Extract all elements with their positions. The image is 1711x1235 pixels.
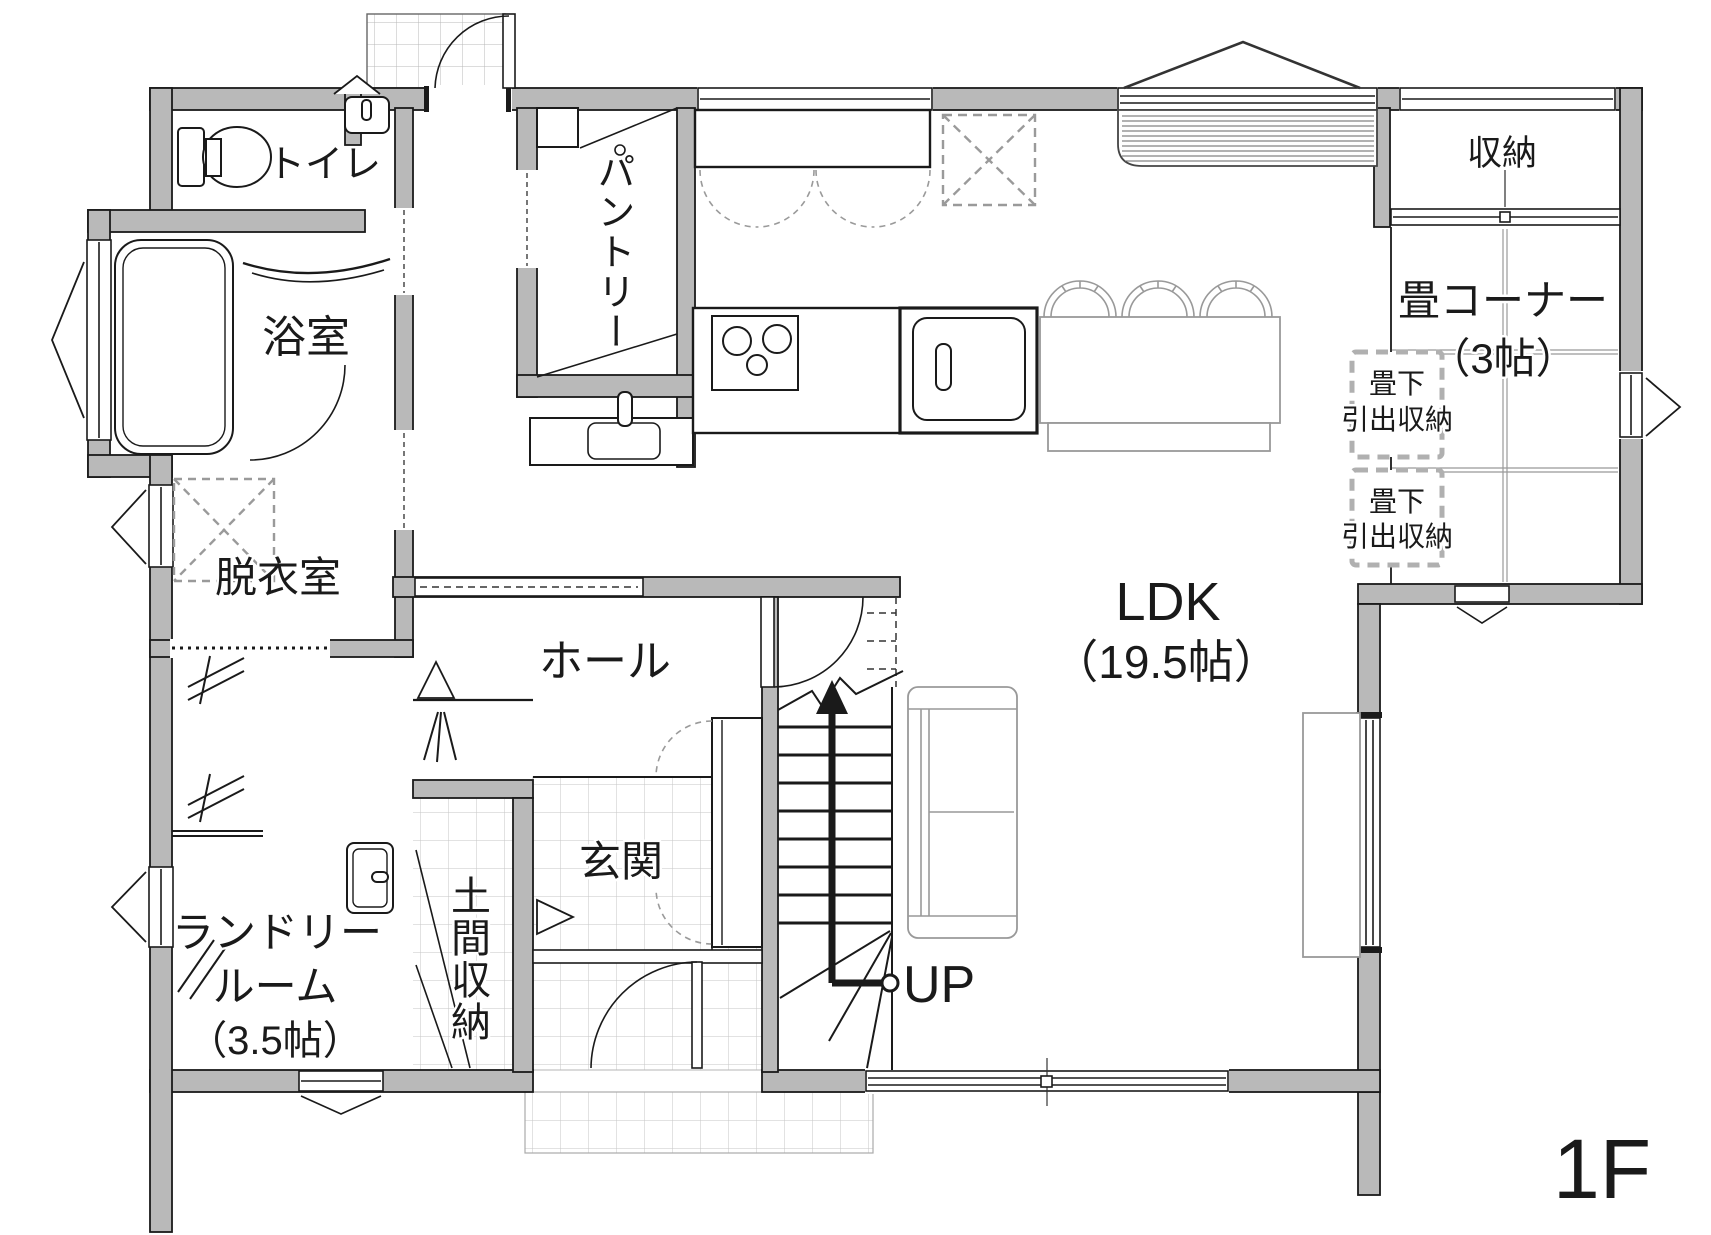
- stairs: [778, 671, 903, 1070]
- burner-icon: [747, 355, 767, 375]
- floor-label: 1F: [1553, 1122, 1651, 1216]
- window-center-lock: [1041, 1076, 1052, 1087]
- window-triangle-icon: [52, 262, 84, 418]
- ldk-door-leaf: [761, 597, 774, 687]
- hanger-pole-icon: [424, 712, 456, 762]
- dining-table: [1040, 317, 1280, 423]
- under-tatami-2-line2: 引出収納: [1341, 521, 1453, 552]
- laundry-counter-line: [172, 831, 263, 836]
- bath-counter-curve: [243, 259, 390, 273]
- entrance-label: 玄関: [579, 838, 663, 885]
- up-label: UP: [903, 956, 975, 1014]
- bath-label: 浴室: [262, 313, 350, 362]
- tv-board: [1303, 713, 1360, 957]
- changing-label: 脱衣室: [215, 554, 341, 601]
- wall-left-main: [150, 455, 172, 1232]
- up-arrow-head-icon: [816, 680, 848, 714]
- under-tatami-1-line1: 畳下: [1369, 368, 1425, 399]
- tatami-size-label: （3帖）: [1428, 335, 1577, 382]
- dining-chairs: [1044, 281, 1272, 317]
- bay-window-seat: [1118, 110, 1377, 166]
- burner-icon: [723, 327, 751, 355]
- ldk-size-label: （19.5帖）: [1052, 636, 1280, 688]
- storage-label: 収納: [1467, 134, 1537, 173]
- wall-doma-right: [513, 798, 533, 1072]
- under-tatami-1-line2: 引出収納: [1341, 404, 1453, 435]
- porch-recess-tiles: [533, 963, 762, 1070]
- window-triangle-icon: [112, 872, 146, 942]
- outdoor-porch-tiles: [525, 1092, 873, 1153]
- window-chevron-icon: [1457, 607, 1507, 623]
- window-triangle-icon: [112, 490, 146, 564]
- refrigerator-icon: [943, 115, 1035, 205]
- hall-label: ホール: [539, 637, 671, 686]
- bay-window-roof-icon: [1124, 42, 1360, 88]
- pantry-label: パントリー: [591, 152, 633, 352]
- wall-bath-top: [88, 210, 365, 232]
- laundry-label-1: ランドリー: [172, 909, 382, 956]
- faucet-icon: [936, 344, 951, 390]
- changing-opening: [170, 639, 330, 658]
- front-door-leaf: [692, 962, 702, 1068]
- hanger-pole-icon: [188, 656, 244, 704]
- ldk-door-swing-arc: [774, 597, 863, 687]
- ldk-label: LDK: [1115, 572, 1220, 632]
- labels: トイレ 浴室 脱衣室 ランドリー ルーム （3.5帖） パントリー ホール 玄関…: [172, 134, 1651, 1216]
- faucet-icon: [618, 392, 632, 426]
- tatami-bottom-window: [1455, 586, 1509, 602]
- tatami-label: 畳コーナー: [1398, 277, 1608, 324]
- storage-door-handle: [1500, 212, 1510, 222]
- up-arrow-start-circle: [882, 975, 898, 991]
- toilet-seat: [206, 139, 221, 176]
- wall-corridor: [395, 108, 413, 657]
- back-door-jamb: [506, 86, 511, 112]
- bay-window: [1118, 88, 1377, 110]
- bath-door-arc: [250, 365, 345, 460]
- bathtub: [115, 240, 233, 454]
- under-tatami-2-line1: 畳下: [1369, 486, 1425, 517]
- window-triangle-icon: [1646, 378, 1680, 436]
- stairs-winders: [780, 931, 892, 1068]
- back-door-jamb: [424, 86, 429, 112]
- ldk-door-open-dashes: [867, 597, 896, 687]
- front-door-sill: [533, 950, 762, 963]
- wall-right-stub: [1358, 1092, 1380, 1195]
- floor-plan-page: トイレ 浴室 脱衣室 ランドリー ルーム （3.5帖） パントリー ホール 玄関…: [0, 0, 1711, 1235]
- shoe-cabinet: [712, 718, 762, 947]
- back-door-leaf: [503, 14, 515, 88]
- sofa: [908, 687, 1017, 938]
- laundry-label-2: ルーム: [213, 963, 338, 1010]
- pantry-niche: [537, 108, 578, 147]
- faucet-icon: [372, 872, 388, 882]
- door-triangle-icon: [418, 662, 454, 698]
- cabinet-door-arcs: [700, 170, 930, 227]
- kitchen-wall-counter: [695, 110, 930, 167]
- back-door-opening: [424, 85, 512, 113]
- wall-pantry-bottom: [517, 375, 695, 397]
- wall-doma-top: [413, 780, 533, 798]
- doma-label: 土間収納: [445, 875, 490, 1043]
- floor-plan-svg: トイレ 浴室 脱衣室 ランドリー ルーム （3.5帖） パントリー ホール 玄関…: [0, 0, 1711, 1235]
- hanger-pole-icon: [188, 774, 244, 822]
- faucet-icon: [362, 100, 371, 120]
- toilet-tank: [178, 128, 204, 186]
- kitchen-sink-unit: [900, 308, 1037, 433]
- pantry-shelf-line: [580, 108, 677, 148]
- burner-icon: [763, 325, 791, 353]
- toilet-label: トイレ: [267, 144, 381, 186]
- window-chevron-icon: [301, 1096, 381, 1114]
- ldk-east-window: [1358, 718, 1380, 947]
- dining-bench: [1048, 423, 1270, 451]
- laundry-label-3: （3.5帖）: [187, 1019, 363, 1063]
- wash-basin-counter: [530, 418, 693, 465]
- wall-right-upper: [1620, 88, 1642, 604]
- wall-left-upper: [150, 88, 172, 212]
